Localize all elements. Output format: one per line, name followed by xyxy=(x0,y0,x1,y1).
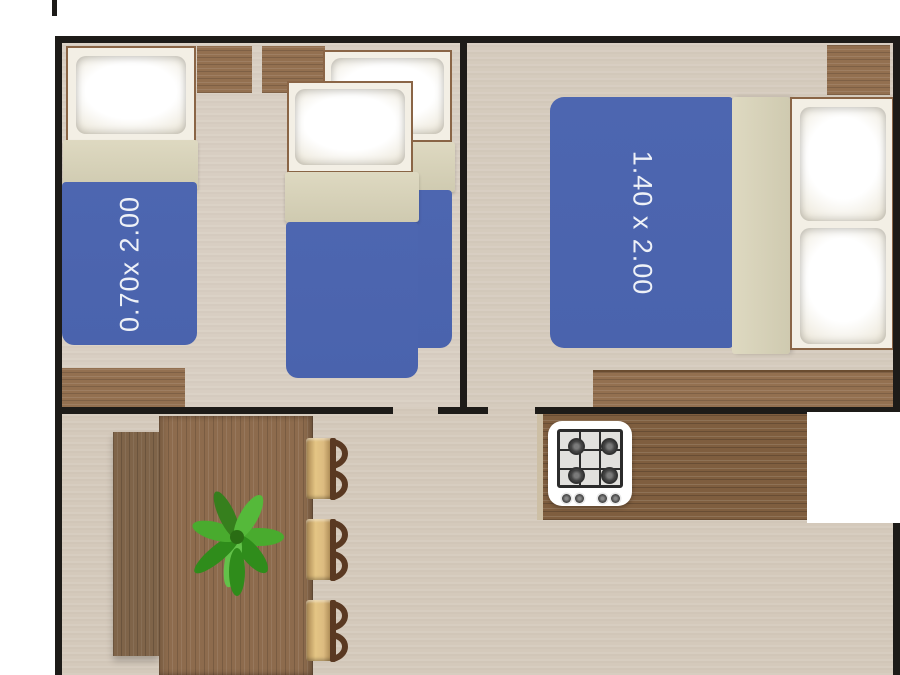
chair-back xyxy=(330,436,352,502)
single-bed-size-label: 0.70x 2.00 xyxy=(114,195,145,331)
wardrobe xyxy=(593,370,893,408)
blanket-fold xyxy=(732,97,790,354)
burner-icon xyxy=(601,467,618,484)
pillow xyxy=(295,89,405,165)
nightstand xyxy=(827,45,890,95)
double-bed-headboard xyxy=(790,97,894,350)
chair-seat xyxy=(306,519,333,580)
chair-back xyxy=(330,598,352,664)
wall-horizontal-left xyxy=(55,407,393,414)
wall-top xyxy=(55,36,900,43)
pillow xyxy=(800,107,886,221)
stove-grate xyxy=(557,429,623,488)
single-bed-blanket: 0.70x 2.00 xyxy=(62,182,197,345)
bench xyxy=(113,432,159,656)
wall-divider-vertical xyxy=(460,36,467,414)
stove-knob xyxy=(575,494,584,503)
floor-plan: 0.70x 2.00 1.40 x 2.00 xyxy=(0,0,900,675)
plant xyxy=(187,487,287,599)
stove-knob xyxy=(611,494,620,503)
stove xyxy=(548,421,632,506)
double-bed-blanket: 1.40 x 2.00 xyxy=(550,97,733,348)
chair xyxy=(306,436,352,502)
appliance-block xyxy=(807,412,900,523)
stove-knob xyxy=(598,494,607,503)
counter-edge xyxy=(537,412,543,520)
wall-tick xyxy=(52,0,57,16)
single-bed-blanket-front xyxy=(286,222,418,378)
wall-left xyxy=(55,36,62,675)
blanket-fold xyxy=(285,172,419,222)
burner-icon xyxy=(568,467,585,484)
stove-knob xyxy=(562,494,571,503)
pillow xyxy=(800,228,886,344)
burner-icon xyxy=(601,438,618,455)
wall-right xyxy=(893,36,900,675)
chair-seat xyxy=(306,438,333,499)
double-bed-size-label: 1.40 x 2.00 xyxy=(626,150,657,295)
pillow xyxy=(76,56,186,134)
chair-back xyxy=(330,517,352,583)
chair-seat xyxy=(306,600,333,661)
wall-horizontal-middle xyxy=(438,407,488,414)
burner-icon xyxy=(568,438,585,455)
chair xyxy=(306,517,352,583)
wardrobe xyxy=(62,368,185,408)
chair xyxy=(306,598,352,664)
shelf xyxy=(197,46,252,93)
